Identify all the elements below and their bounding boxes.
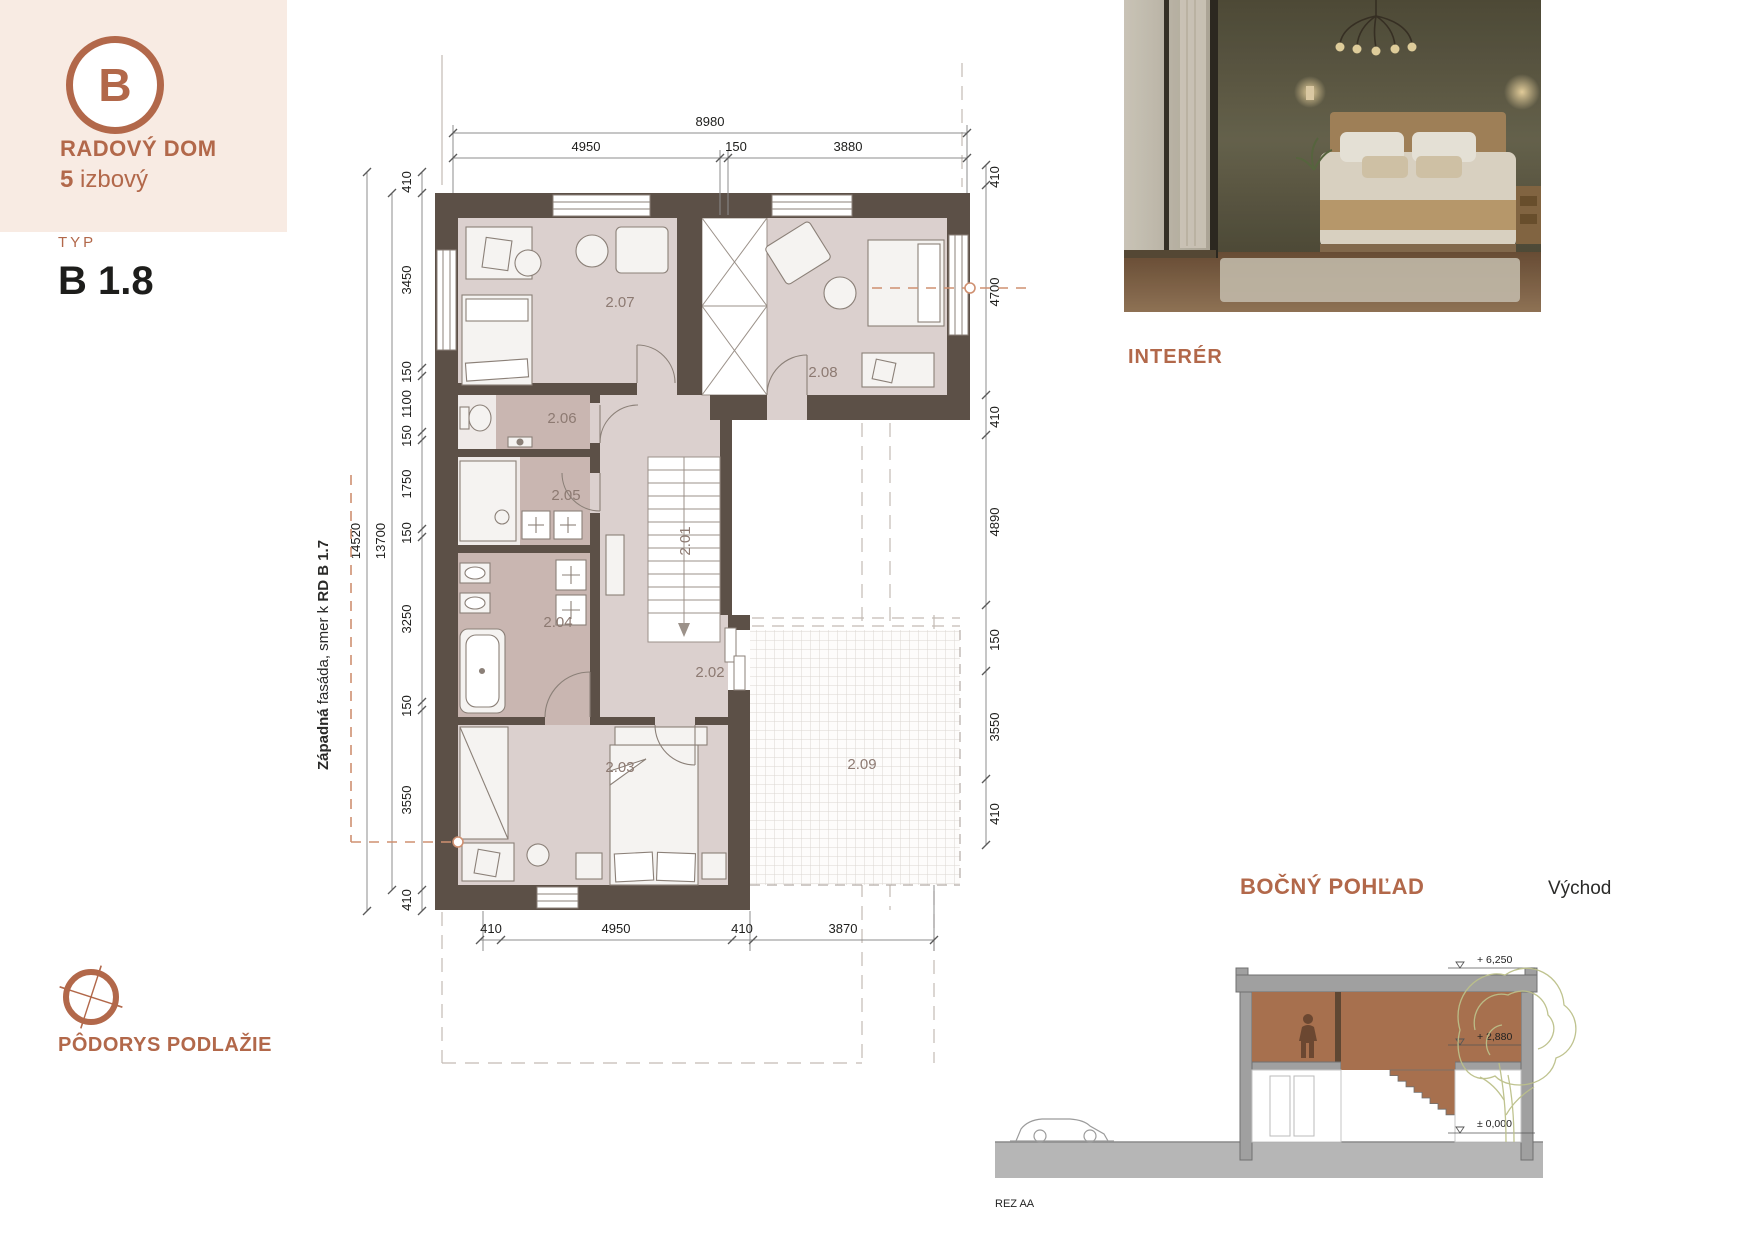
- room-label-208: 2.08: [808, 364, 837, 381]
- photo-vignette: [1124, 0, 1541, 312]
- dim-top-2: 3880: [834, 139, 863, 154]
- section-stairs: [1390, 1070, 1455, 1115]
- dim-right-3: 4890: [987, 508, 1002, 537]
- dim-right-6: 410: [987, 803, 1002, 825]
- dim-bottom-0: 410: [480, 921, 502, 936]
- room-label-204: 2.04: [543, 614, 572, 631]
- dim-left-4: 150: [399, 425, 414, 447]
- side-view-title: BOČNÝ POHĽAD: [1240, 874, 1424, 900]
- dim-left-3: 1100: [399, 390, 414, 418]
- window-south: [537, 887, 578, 908]
- dim-left-8: 150: [399, 695, 414, 717]
- west-facade-name: Západná: [315, 708, 332, 770]
- dim-left-6: 150: [399, 522, 414, 544]
- dim-chain-left: 410 3450 150 1100 150 1750 150 3250 150 …: [399, 171, 414, 911]
- dim-left-5: 1750: [399, 470, 414, 499]
- type-label: TYP: [58, 234, 154, 251]
- west-facade-annotation: Západná fasáda, smer k RD B 1.7: [315, 540, 332, 770]
- wall-left: [1240, 992, 1252, 1160]
- room-label-209: 2.09: [847, 756, 876, 773]
- dim-top-0: 4950: [572, 139, 601, 154]
- dim-left-9: 3550: [399, 786, 414, 815]
- house-type-badge-icon: B: [66, 36, 164, 134]
- badge-panel: B RADOVÝ DOM 5 izbový: [0, 0, 287, 232]
- wall-right: [1521, 992, 1533, 1160]
- house-type-title: RADOVÝ DOM: [60, 136, 217, 162]
- dim-right-2: 410: [987, 406, 1002, 428]
- west-facade-target: RD B 1.7: [315, 540, 332, 602]
- level-roof: + 6,250: [1477, 954, 1512, 966]
- roof-slab: [1236, 975, 1537, 992]
- compass-icon: [56, 962, 126, 1032]
- dim-right-4: 150: [987, 629, 1002, 651]
- ground-strip: [995, 1142, 1543, 1178]
- room-label-202: 2.02: [695, 664, 724, 681]
- side-view-direction: Východ: [1548, 878, 1611, 900]
- room-label-205: 2.05: [551, 487, 580, 504]
- dim-top-1: 150: [725, 139, 747, 154]
- rooms-count-label: 5 izbový: [60, 166, 148, 194]
- room-label-203: 2.03: [605, 759, 634, 776]
- dim-right-0: 410: [987, 166, 1002, 188]
- dim-right-1: 4700: [987, 278, 1002, 307]
- level-upper-floor: + 2,880: [1477, 1031, 1512, 1043]
- dim-left-1: 3450: [399, 266, 414, 295]
- window-north-1: [553, 195, 650, 216]
- dim-left-0: 410: [399, 171, 414, 193]
- plan-caption: PÔDORYS PODLAŽIE: [58, 1034, 272, 1057]
- room-label-207: 2.07: [605, 294, 634, 311]
- dim-bottom-1: 4950: [602, 921, 631, 936]
- section-drawing: + 6,250 + 2,880 ± 0,000 REZ: [990, 935, 1754, 1225]
- dim-bottom-3: 3870: [829, 921, 858, 936]
- car-sketch: [1010, 1119, 1114, 1142]
- window-west: [437, 250, 456, 350]
- built-in-wardrobe: [702, 218, 767, 395]
- hall-cabinet: [606, 535, 624, 595]
- interior-label: INTERÉR: [1128, 346, 1223, 369]
- type-block: TYP B 1.8: [58, 234, 154, 304]
- rooms-count: 5: [60, 166, 73, 193]
- rooms-word: izbový: [73, 166, 148, 193]
- stair-mass: [1341, 992, 1455, 1070]
- dim-left-10: 410: [399, 889, 414, 911]
- section-building: [1236, 968, 1537, 1160]
- room-label-201: 2.01: [677, 526, 694, 555]
- facade-marker-west: [453, 837, 463, 847]
- dim-bottom-2: 410: [731, 921, 753, 936]
- dim-left-2: 150: [399, 361, 414, 383]
- room-label-206: 2.06: [547, 410, 576, 427]
- west-facade-mid: fasáda, smer k: [315, 602, 332, 705]
- dim-top-total: 8980: [696, 114, 725, 129]
- floor-plan: 8980 4950 150 3880 14520 13700 410 3450 …: [270, 55, 1030, 1155]
- interior-photo: [1124, 0, 1541, 312]
- facade-marker-east: [965, 283, 975, 293]
- interior-photo-scene: [1124, 0, 1541, 312]
- dim-left-7: 3250: [399, 605, 414, 634]
- dim-chain-right: 410 4700 410 4890 150 3550 410: [987, 166, 1002, 825]
- badge-letter: B: [98, 62, 131, 108]
- dim-chain-bottom: 410 4950 410 3870: [480, 921, 857, 936]
- window-north-2: [772, 195, 852, 216]
- brochure-page: B RADOVÝ DOM 5 izbový TYP B 1.8 PÔDORYS …: [0, 0, 1754, 1240]
- section-ref-label: REZ AA: [995, 1198, 1035, 1210]
- level-flag-roof: [1456, 962, 1464, 968]
- type-value: B 1.8: [58, 259, 154, 304]
- dim-left-inner: 13700: [373, 523, 388, 559]
- level-ground: ± 0,000: [1477, 1118, 1512, 1130]
- dim-right-5: 3550: [987, 713, 1002, 742]
